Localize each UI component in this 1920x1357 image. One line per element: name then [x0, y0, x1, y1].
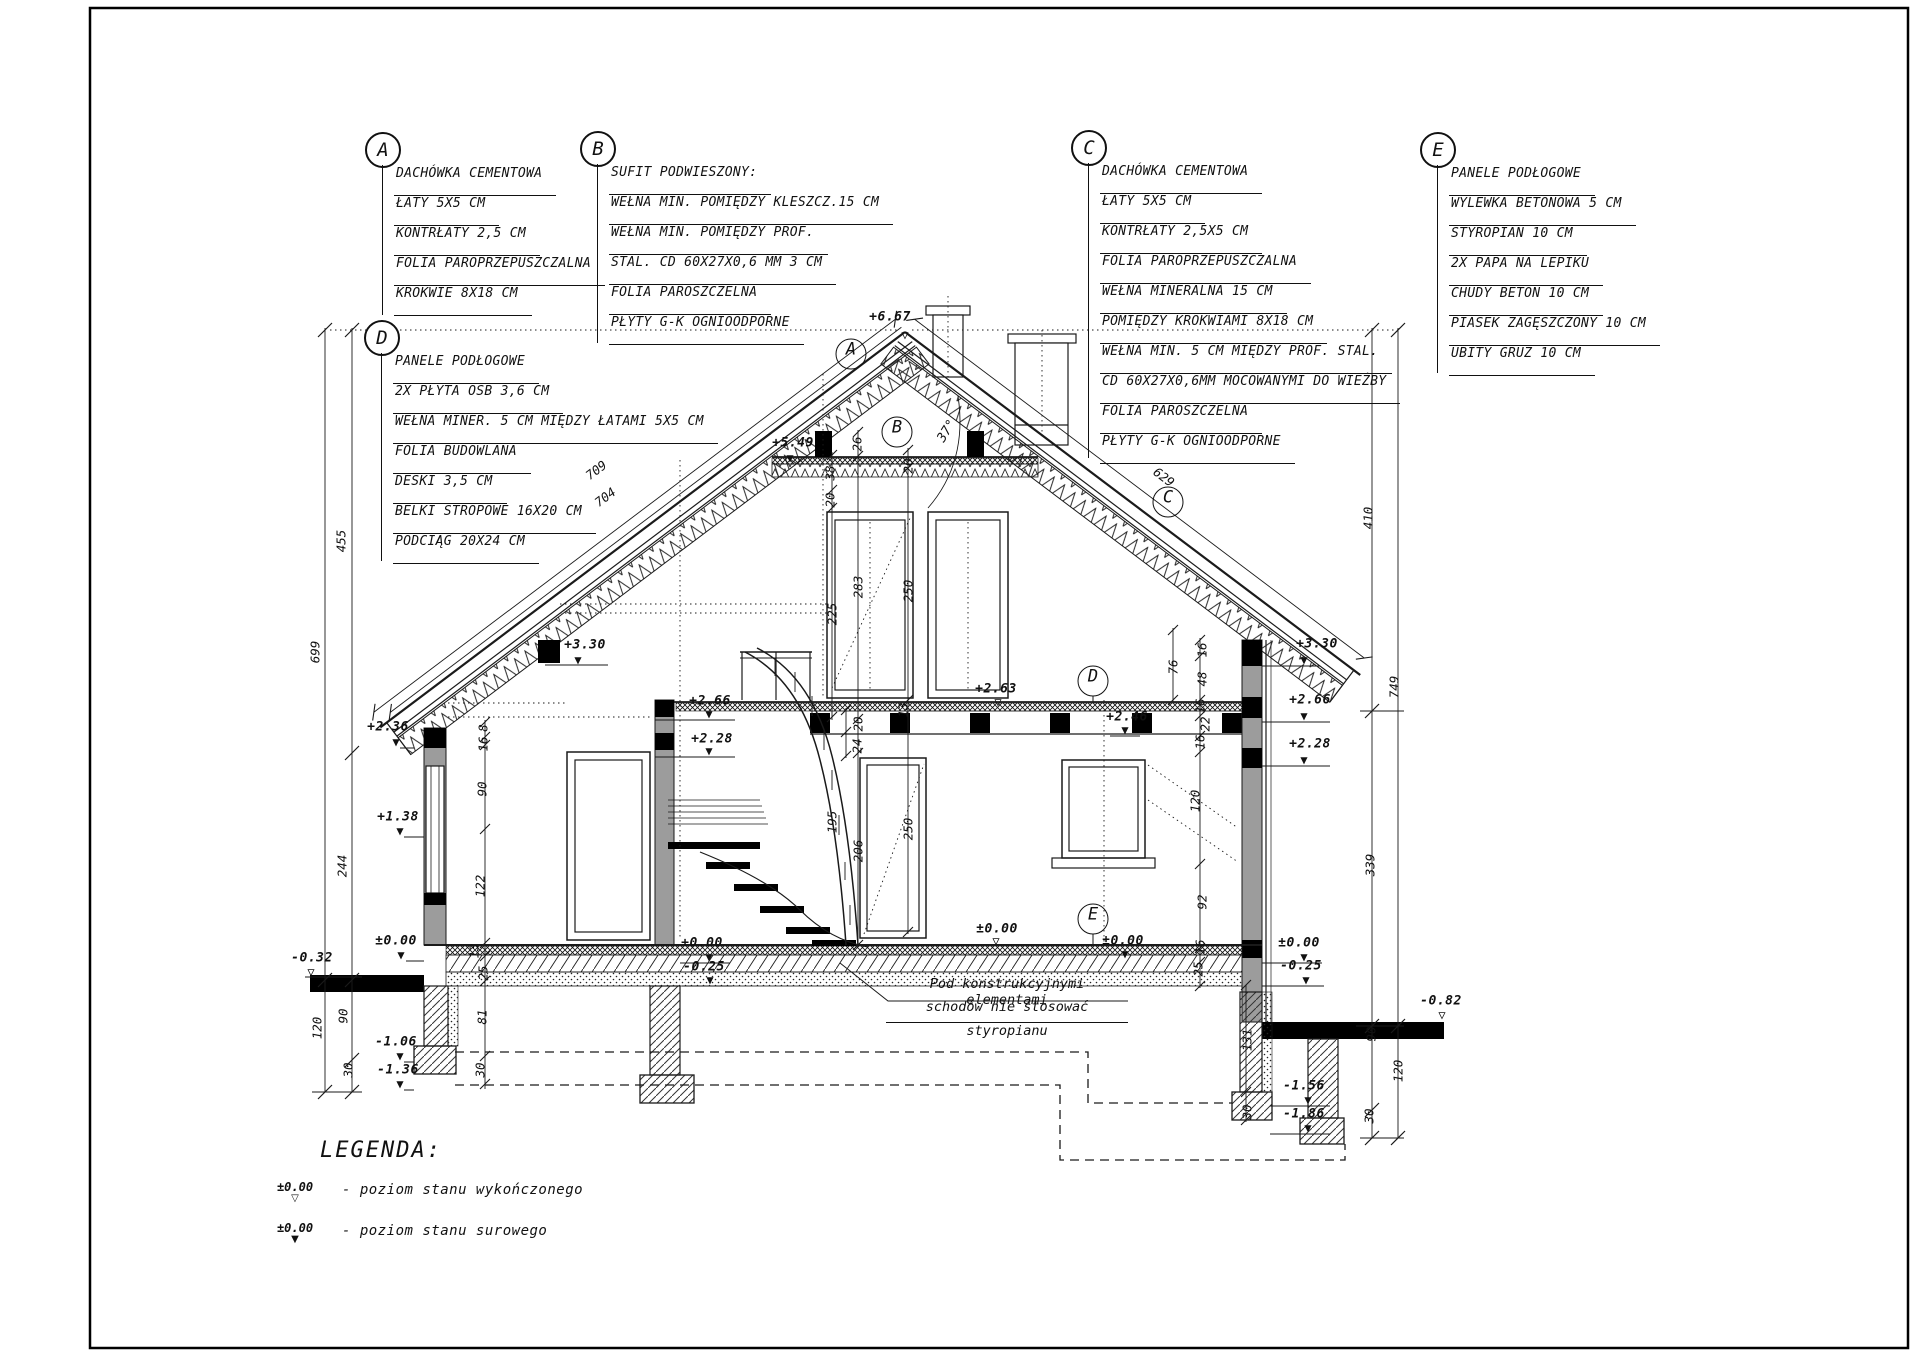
dimension-label: 20	[851, 716, 866, 731]
dimension-label: 225	[825, 603, 840, 626]
elevation-label: -1.36	[377, 1063, 419, 1078]
level-marker-filled-icon: ▼	[1300, 653, 1307, 667]
dimension-label: 206	[851, 840, 866, 863]
dimension-label: 339	[1363, 854, 1378, 877]
elevation-label: +3.30	[1296, 637, 1338, 652]
angle-label: 37°	[934, 417, 959, 445]
level-marker-filled-icon: ▼	[392, 735, 399, 749]
elevation-label: -0.32	[291, 951, 333, 966]
elevation-label: ±0.00	[375, 934, 417, 949]
dimension-label: 8	[476, 724, 491, 732]
elevation-label: -0.82	[1420, 994, 1462, 1009]
level-marker-filled-icon: ▼	[396, 824, 403, 838]
legend-level-value: ±0.00	[277, 1180, 313, 1194]
dimension-label: 20	[901, 458, 916, 473]
dimension-label: 283	[851, 576, 866, 599]
elevation-label: +2.66	[1289, 693, 1331, 708]
note-line: Pod konstrukcyjnymi elementami	[886, 976, 1128, 999]
dimension-label: 195	[825, 811, 840, 834]
drawing-sheet: A DACHÓWKA CEMENTOWAŁATY 5X5 CMKONTRŁATY…	[0, 0, 1920, 1357]
legend-label: - poziom stanu wykończonego	[342, 1180, 583, 1198]
dimension-label: 90	[1364, 1026, 1379, 1041]
dimension-label: 30	[1240, 1104, 1255, 1119]
level-marker-filled-icon: ▼	[1300, 753, 1307, 767]
dimension-label: 749	[1387, 676, 1402, 699]
dimension-label: 26	[850, 436, 865, 451]
dimension-label: 16	[476, 736, 491, 751]
level-marker-filled-icon: ▼	[1300, 709, 1307, 723]
dimension-label: 122	[473, 875, 488, 898]
level-marker-filled-icon: ▼	[397, 948, 404, 962]
level-marker-filled-icon: ▼	[1304, 1093, 1311, 1107]
dimension-label: 76	[1166, 659, 1181, 674]
dimension-label: 16	[1193, 698, 1208, 713]
legend-title: LEGENDA:	[320, 1138, 583, 1163]
elevation-label: -0.25	[683, 960, 725, 975]
dimension-label: 22	[1198, 716, 1213, 731]
dimension-label: 16	[1195, 642, 1210, 657]
legend-row-finished: ±0.00 ▽ - poziom stanu wykończonego	[268, 1180, 583, 1204]
note-line: schodów nie stosować	[886, 999, 1128, 1023]
dimension-label: 250	[901, 580, 916, 603]
level-marker-filled-icon: ▼	[396, 1049, 403, 1063]
elevation-label: -1.56	[1283, 1079, 1325, 1094]
elevation-label: +1.38	[377, 810, 419, 825]
elevation-label: -1.06	[375, 1035, 417, 1050]
dimension-label: 131	[1240, 1029, 1255, 1052]
elevation-label: -0.25	[1280, 959, 1322, 974]
elevation-label: +3.30	[564, 638, 606, 653]
elevation-label: +2.28	[1289, 737, 1331, 752]
level-marker-filled-icon: ▼	[1121, 947, 1128, 961]
legend: LEGENDA: ±0.00 ▽ - poziom stanu wykończo…	[268, 1138, 583, 1245]
dimension-label: 81	[475, 1009, 490, 1024]
dimension-label: 30	[1362, 1108, 1377, 1123]
level-marker-filled-icon: ▼	[1304, 1121, 1311, 1135]
dimension-label: 13	[467, 943, 482, 958]
dimension-label: 38	[823, 465, 838, 480]
level-marker-filled-icon: ▼	[706, 973, 713, 987]
level-marker-open-icon: ▽	[901, 328, 908, 342]
level-marker-filled-icon: ▼	[291, 1234, 299, 1245]
dimension-label: 410	[1361, 507, 1376, 530]
legend-label: - poziom stanu surowego	[342, 1221, 547, 1239]
level-marker-filled-icon: ▼	[1121, 723, 1128, 737]
dimension-label: 90	[475, 781, 490, 796]
dimension-label: 16	[1193, 734, 1208, 749]
section-marker-b: B	[882, 417, 913, 448]
dimension-label: 120	[1391, 1060, 1406, 1083]
section-marker-e: E	[1078, 904, 1109, 935]
note-line: styropianu	[886, 1023, 1128, 1046]
level-marker-open-icon: ▽	[1438, 1008, 1445, 1022]
stairs-note: Pod konstrukcyjnymi elementami schodów n…	[886, 976, 1128, 1046]
dimension-label: 25	[1191, 961, 1206, 976]
dimension-label: 20	[823, 492, 838, 507]
dimension-label: 13	[896, 702, 911, 717]
level-marker-filled-icon: ▼	[396, 1077, 403, 1091]
dimension-label: 16	[1193, 939, 1208, 954]
dimension-label: 24	[850, 738, 865, 753]
level-marker-filled-icon: ▼	[1302, 973, 1309, 987]
dimension-label: 30	[473, 1062, 488, 1077]
legend-level-value: ±0.00	[277, 1221, 313, 1235]
dimension-label: 25	[476, 965, 491, 980]
legend-row-raw: ±0.00 ▼ - poziom stanu surowego	[268, 1221, 583, 1245]
level-marker-open-icon: ▽	[307, 965, 314, 979]
level-marker-filled-icon: ▼	[705, 744, 712, 758]
dimension-label: 455	[334, 530, 349, 553]
dimension-label: 48	[1195, 671, 1210, 686]
section-marker-d: D	[1078, 666, 1109, 697]
elevation-label: +0.00	[681, 936, 723, 951]
level-marker-filled-icon: ▼	[705, 707, 712, 721]
section-marker-a: A	[836, 339, 867, 370]
elevation-label: +5.49	[772, 436, 814, 451]
dimension-label: 30	[341, 1062, 356, 1077]
elevation-label: +2.36	[367, 720, 409, 735]
dimension-label: 250	[901, 818, 916, 841]
dimension-label: 92	[1195, 894, 1210, 909]
elevation-label: ±0.00	[1278, 936, 1320, 951]
dimension-label: 699	[308, 641, 323, 664]
elevation-label: -1.86	[1283, 1107, 1325, 1122]
dimension-label: 709	[582, 457, 609, 483]
section-marker-c: C	[1153, 487, 1184, 518]
elevation-label: +6.67	[869, 310, 911, 325]
dimension-label: 120	[310, 1017, 325, 1040]
dimension-label: 120	[1188, 790, 1203, 813]
level-marker-filled-icon: ▼	[574, 653, 581, 667]
level-marker-open-icon: ▽	[291, 1193, 299, 1204]
level-marker-filled-icon: ▼	[786, 451, 793, 465]
level-marker-open-icon: ▽	[992, 934, 999, 948]
dimension-label: 90	[336, 1008, 351, 1023]
dimension-label: 704	[591, 484, 618, 510]
dimension-label: 244	[335, 855, 350, 878]
level-marker-open-icon: ▽	[994, 695, 1001, 709]
